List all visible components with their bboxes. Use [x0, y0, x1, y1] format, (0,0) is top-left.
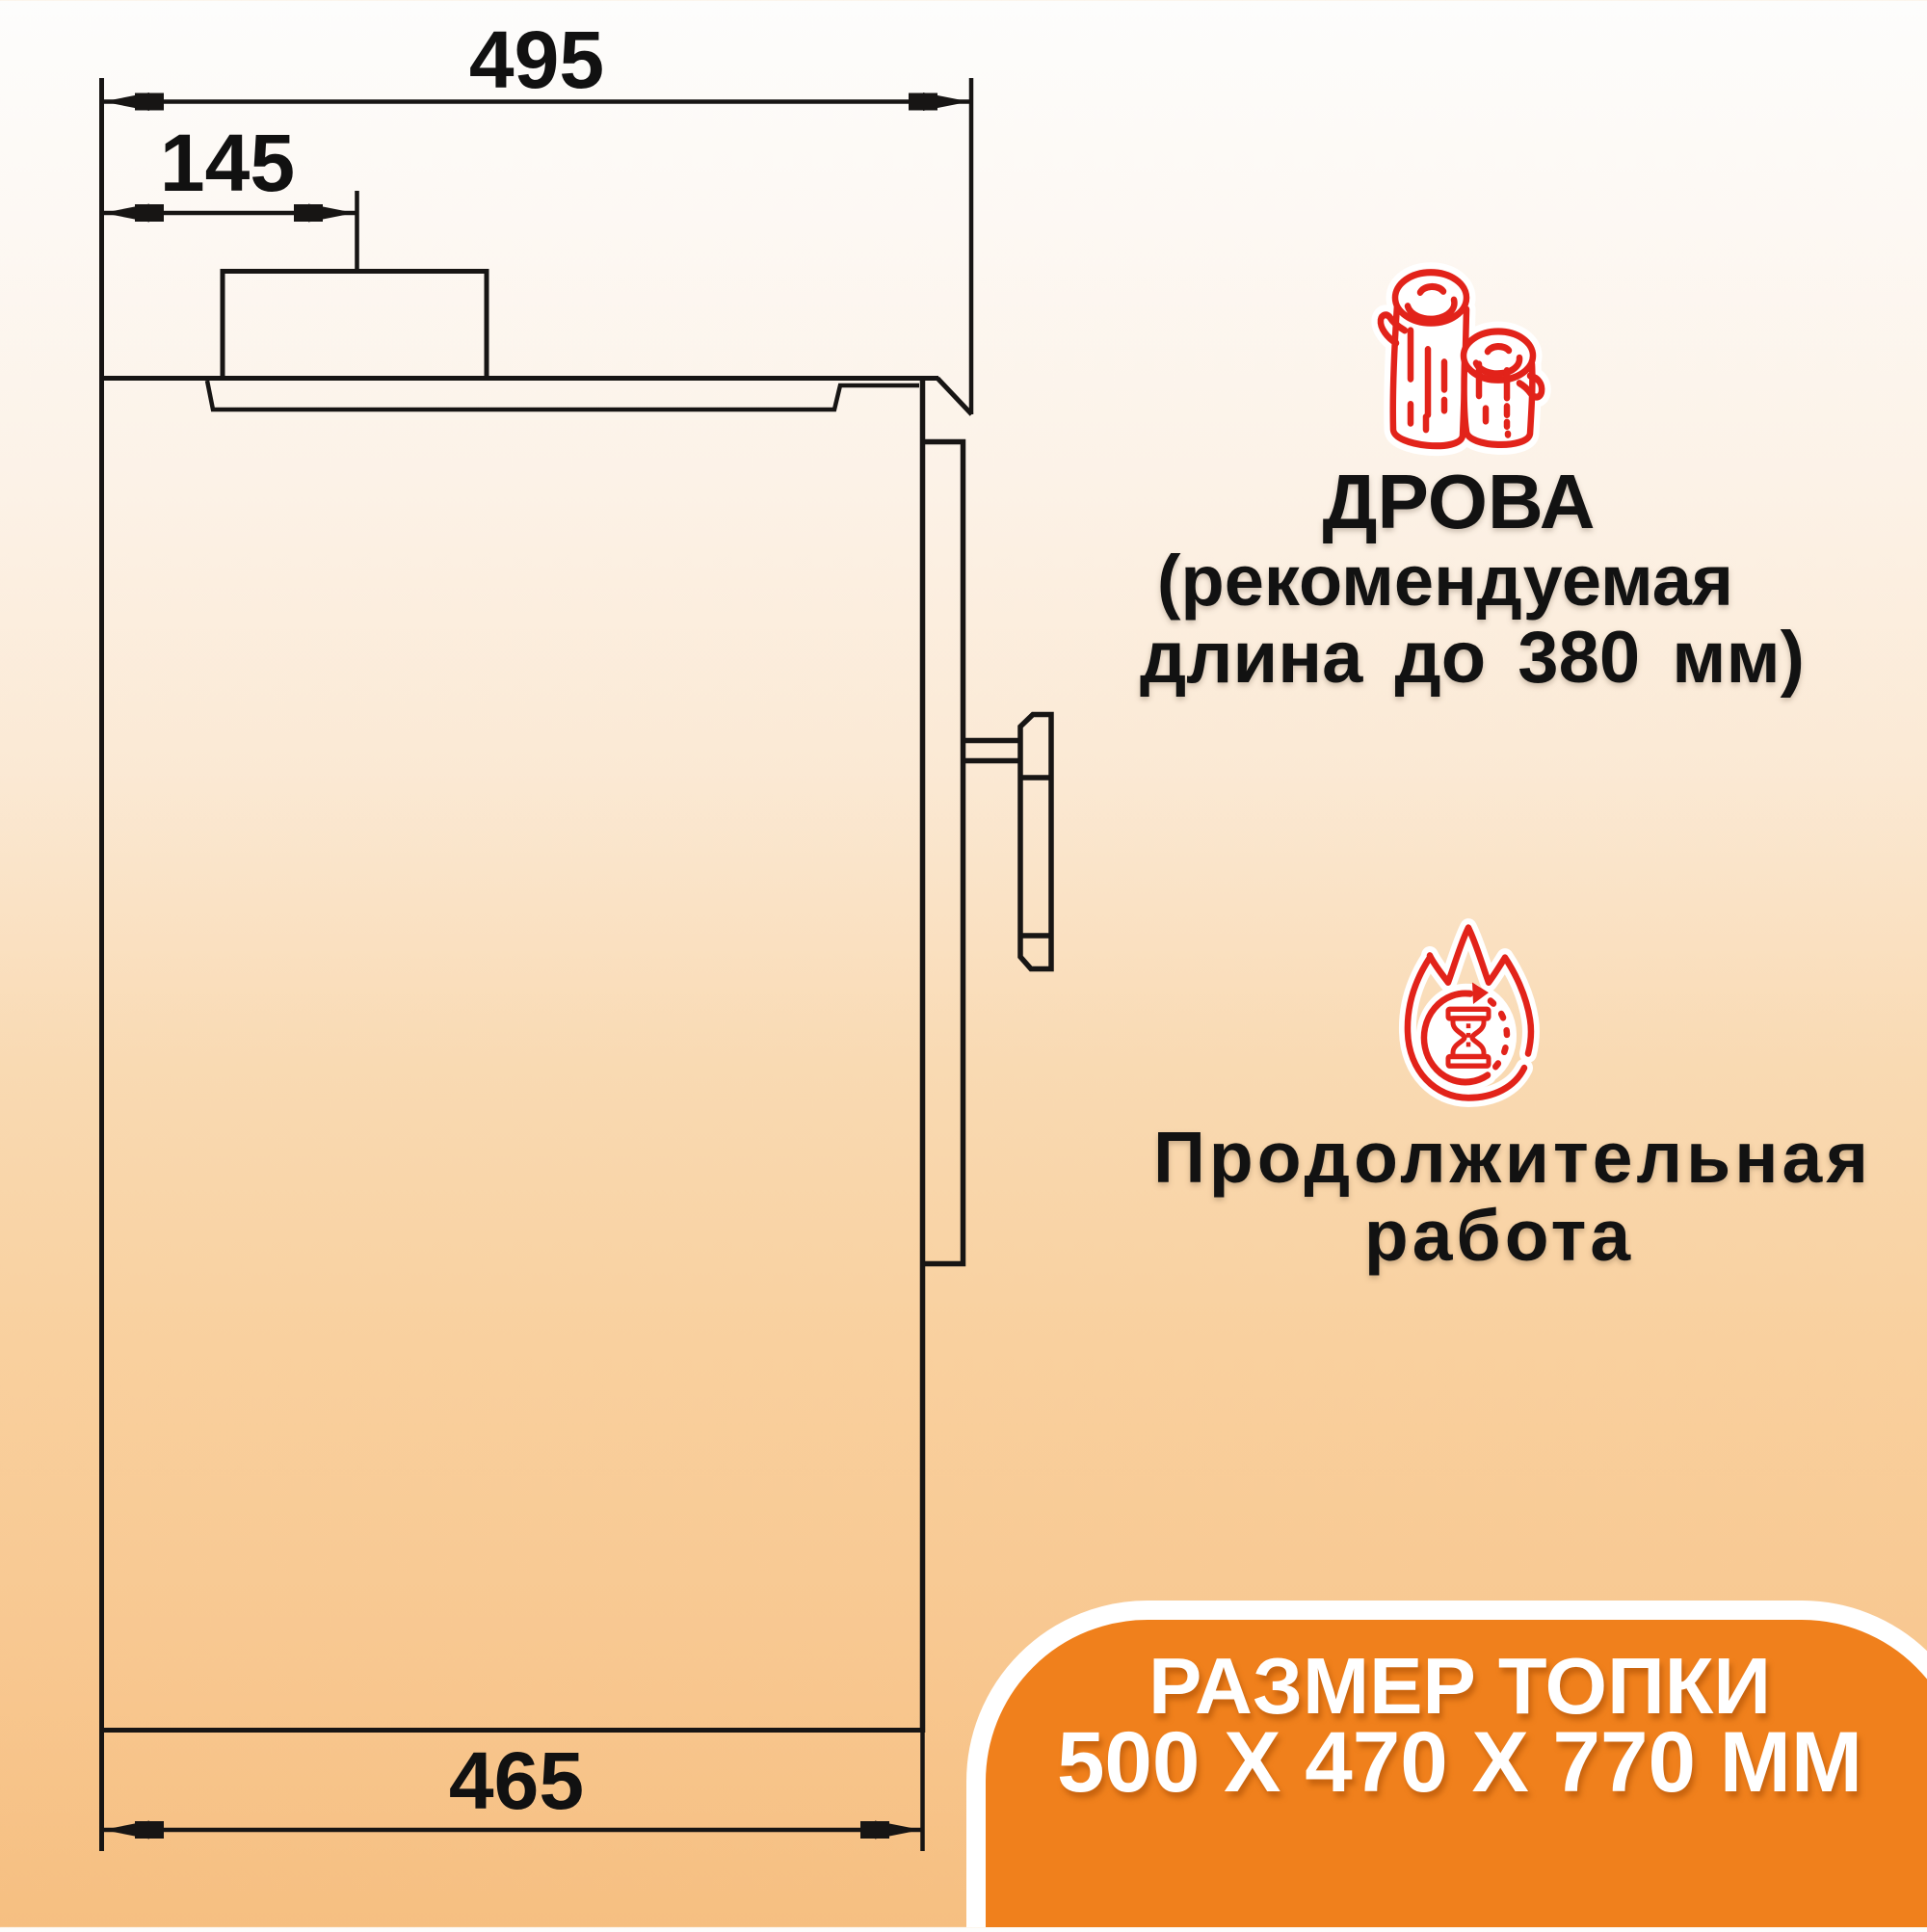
svg-text:Продолжительная: Продолжительная [1153, 1117, 1872, 1198]
svg-text:ДРОВА: ДРОВА [1322, 459, 1595, 544]
svg-text:465: 465 [449, 1735, 584, 1826]
svg-text:145: 145 [160, 118, 295, 208]
svg-text:работа: работа [1364, 1195, 1634, 1276]
svg-text:длина до 380 мм): длина до 380 мм) [1140, 617, 1805, 699]
svg-text:(рекомендуемая: (рекомендуемая [1157, 541, 1733, 621]
svg-text:500 Х 470 Х 770 ММ: 500 Х 470 Х 770 ММ [1057, 1713, 1862, 1810]
svg-text:495: 495 [469, 14, 604, 105]
